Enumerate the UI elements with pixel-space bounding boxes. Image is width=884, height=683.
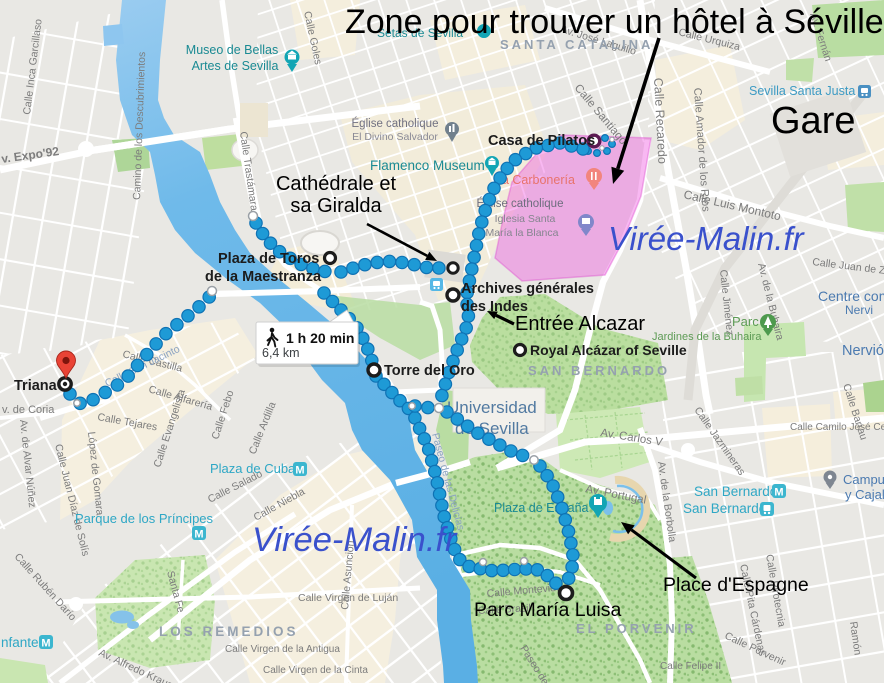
svg-text:sa Giralda: sa Giralda — [290, 195, 382, 217]
svg-text:Plaza de Cuba: Plaza de Cuba — [210, 461, 296, 476]
svg-text:6,4 km: 6,4 km — [262, 346, 300, 360]
svg-text:Zone pour trouver un hôtel à S: Zone pour trouver un hôtel à Séville — [345, 3, 884, 41]
svg-text:SAN BERNARDO: SAN BERNARDO — [528, 363, 670, 378]
svg-text:Gare: Gare — [771, 100, 855, 142]
svg-text:M: M — [41, 638, 50, 650]
svg-text:San Bernardo: San Bernardo — [683, 501, 766, 516]
svg-text:Virée-Malin.fr: Virée-Malin.fr — [252, 521, 458, 559]
svg-text:Torre del Oro: Torre del Oro — [384, 363, 475, 379]
svg-text:Place d'Espagne: Place d'Espagne — [663, 574, 809, 596]
svg-text:Nervión: Nervión — [842, 343, 884, 359]
svg-text:Museo de Bellas: Museo de Bellas — [186, 43, 278, 57]
svg-text:Centre com: Centre com — [818, 288, 884, 304]
svg-text:M: M — [295, 465, 304, 477]
svg-text:Calle Virgen de la Antigua: Calle Virgen de la Antigua — [225, 644, 340, 655]
svg-text:Plaza de España: Plaza de España — [494, 501, 589, 515]
svg-text:Casa de Pilatos: Casa de Pilatos — [488, 133, 595, 149]
svg-text:Église catholique: Église catholique — [352, 117, 439, 130]
svg-text:Calle Camilo José Cela: Calle Camilo José Cela — [790, 422, 884, 433]
svg-text:Flamenco Museum: Flamenco Museum — [370, 158, 485, 173]
svg-text:de la Maestranza: de la Maestranza — [205, 269, 322, 285]
svg-text:Parque de los Príncipes: Parque de los Príncipes — [75, 511, 214, 526]
svg-text:Sevilla Santa Justa: Sevilla Santa Justa — [749, 84, 855, 98]
svg-text:Calle Virgen de Luján: Calle Virgen de Luján — [298, 592, 398, 604]
svg-text:Plaza de Toros: Plaza de Toros — [218, 251, 319, 267]
svg-text:Parc María Luisa: Parc María Luisa — [474, 599, 622, 621]
svg-text:y Cajal: y Cajal — [845, 487, 884, 502]
svg-text:Campu: Campu — [843, 472, 884, 487]
svg-text:San Bernardo: San Bernardo — [694, 484, 777, 499]
svg-text:LOS REMEDIOS: LOS REMEDIOS — [159, 624, 299, 639]
svg-text:EL PORVENIR: EL PORVENIR — [576, 621, 697, 636]
svg-text:M: M — [774, 487, 783, 499]
svg-text:Triana: Triana — [14, 378, 58, 394]
svg-text:Archives générales: Archives générales — [461, 281, 594, 297]
svg-text:Virée-Malin.fr: Virée-Malin.fr — [608, 220, 806, 257]
svg-text:Nervi: Nervi — [845, 303, 873, 317]
svg-text:M: M — [194, 529, 203, 541]
svg-text:Calle Virgen de la Cinta: Calle Virgen de la Cinta — [263, 665, 368, 676]
svg-text:María la Blanca: María la Blanca — [486, 227, 559, 239]
svg-text:Calle Felipe II: Calle Felipe II — [660, 661, 721, 672]
svg-text:1 h 20 min: 1 h 20 min — [286, 330, 354, 346]
svg-text:Royal Alcázar of Seville: Royal Alcázar of Seville — [530, 342, 687, 358]
svg-text:Parc: Parc — [732, 314, 759, 329]
svg-text:Iglesia Santa: Iglesia Santa — [495, 213, 556, 225]
svg-text:v. de Coria: v. de Coria — [2, 404, 55, 416]
svg-text:Entrée Alcazar: Entrée Alcazar — [515, 313, 645, 335]
svg-text:nfante: nfante — [1, 635, 39, 650]
svg-text:Artes de Sevilla: Artes de Sevilla — [192, 59, 279, 73]
svg-text:Cathédrale et: Cathédrale et — [276, 173, 397, 195]
svg-text:El Divino Salvador: El Divino Salvador — [352, 131, 438, 143]
